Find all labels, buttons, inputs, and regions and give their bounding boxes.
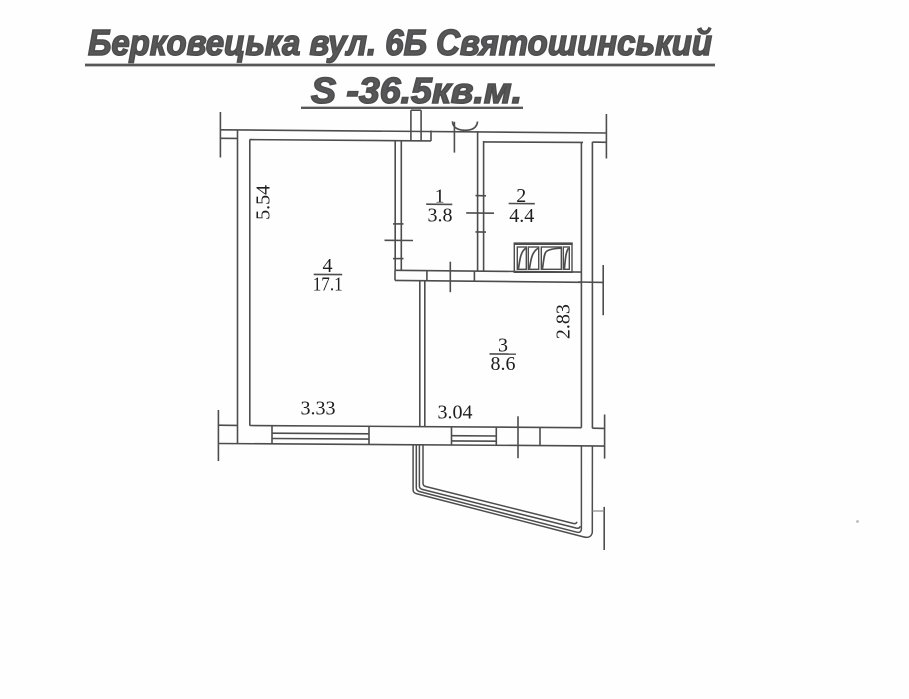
svg-text:17.1: 17.1 <box>313 274 343 296</box>
svg-text:5.54: 5.54 <box>253 185 275 220</box>
svg-text:2.83: 2.83 <box>553 304 575 339</box>
svg-text:Берковецька вул. 6Б Святошинс: Берковецька вул. 6Б Святошинський <box>88 22 712 63</box>
svg-text:3.8: 3.8 <box>428 205 453 227</box>
svg-text:4.4: 4.4 <box>509 205 534 227</box>
svg-text:8.6: 8.6 <box>491 353 516 375</box>
svg-text:3.33: 3.33 <box>301 398 336 420</box>
svg-text:S -36.5кв.м.: S -36.5кв.м. <box>311 70 522 111</box>
svg-text:3.04: 3.04 <box>438 402 473 424</box>
